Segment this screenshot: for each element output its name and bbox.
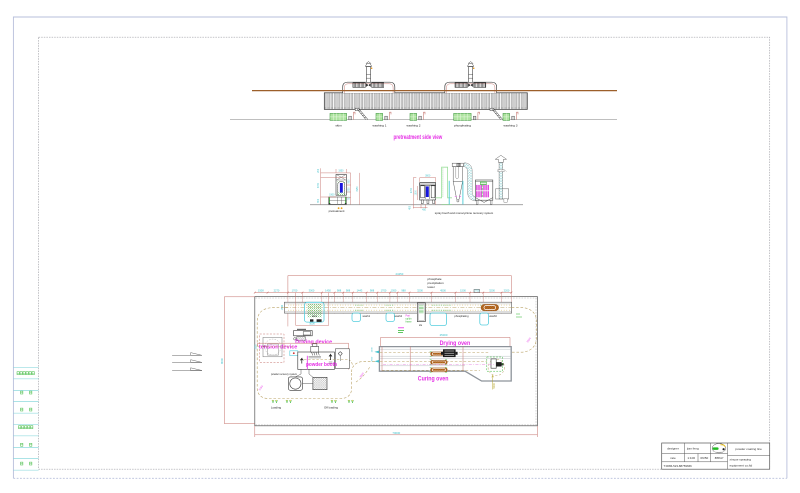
svg-text:1750: 1750 (348, 187, 350, 193)
svg-text:spray booth and monocyclone re: spray booth and monocyclone recovery sys… (435, 211, 494, 215)
svg-text:988: 988 (401, 288, 406, 292)
svg-text:Curing oven: Curing oven (418, 376, 449, 383)
svg-text:2000: 2000 (372, 347, 374, 353)
svg-text:T:0086-523-88759666: T:0086-523-88759666 (664, 464, 693, 468)
svg-text:2270: 2270 (274, 288, 280, 292)
svg-text:1508: 1508 (258, 288, 264, 292)
svg-text:pretreatment side view: pretreatment side view (394, 134, 443, 141)
svg-text:1900: 1900 (415, 190, 417, 196)
svg-text:70000: 70000 (392, 431, 400, 435)
svg-text:tower: tower (428, 285, 435, 289)
svg-text:Drying oven: Drying oven (440, 340, 471, 347)
svg-text:988: 988 (370, 288, 375, 292)
svg-text:frame: frame (406, 321, 413, 324)
svg-text:xinyue spraying: xinyue spraying (730, 457, 752, 461)
svg-text:4500: 4500 (440, 288, 446, 292)
svg-text:Off loading: Off loading (324, 406, 338, 410)
svg-text:5000: 5000 (493, 382, 496, 388)
svg-text:3200: 3200 (489, 288, 495, 292)
svg-text:jian feng: jian feng (686, 447, 699, 451)
svg-text:3150: 3150 (318, 182, 320, 188)
svg-text:1700: 1700 (381, 288, 387, 292)
svg-text:washing 1: washing 1 (373, 123, 387, 127)
svg-text:wash1: wash1 (363, 314, 371, 318)
svg-text:1900: 1900 (329, 194, 335, 196)
svg-text:powder recovery system: powder recovery system (271, 373, 297, 376)
svg-text:rate: rate (670, 456, 676, 460)
svg-text:tension device: tension device (259, 345, 298, 351)
svg-text:phosphating: phosphating (454, 123, 471, 127)
svg-text:1700: 1700 (474, 288, 480, 292)
svg-text:1700: 1700 (292, 288, 298, 292)
svg-text:skim: skim (335, 123, 342, 127)
svg-text:1050: 1050 (391, 288, 397, 292)
svg-text:24250: 24250 (396, 272, 404, 276)
svg-text:skim: skim (312, 314, 317, 318)
svg-text:washing 2: washing 2 (407, 123, 421, 127)
svg-text:3950: 3950 (357, 186, 359, 192)
svg-text:powder coating line: powder coating line (735, 447, 762, 451)
svg-text:25000: 25000 (440, 333, 448, 337)
svg-text:988: 988 (337, 288, 342, 292)
svg-text:885617: 885617 (715, 456, 724, 460)
svg-text:2000: 2000 (372, 356, 374, 362)
svg-text:powder booth: powder booth (306, 362, 337, 368)
svg-text:988: 988 (346, 288, 351, 292)
svg-text:washing 3: washing 3 (504, 123, 518, 127)
svg-text:wash2: wash2 (395, 314, 403, 318)
svg-text:1450: 1450 (325, 288, 331, 292)
svg-text:3200: 3200 (417, 288, 423, 292)
svg-text:3000: 3000 (425, 175, 431, 177)
svg-text:06/50: 06/50 (700, 456, 708, 460)
svg-text:8000: 8000 (220, 358, 224, 364)
svg-text:1950: 1950 (338, 171, 344, 173)
svg-text:wash3: wash3 (489, 314, 497, 318)
svg-text:1443: 1443 (357, 288, 363, 292)
svg-text:2700: 2700 (411, 187, 413, 193)
svg-text:equipment co;ltd: equipment co;ltd (730, 463, 753, 467)
svg-text:5000: 5000 (309, 323, 315, 326)
svg-text:pretreatment: pretreatment (329, 209, 345, 213)
svg-text:1500: 1500 (281, 304, 284, 310)
svg-text:2200: 2200 (504, 288, 510, 292)
svg-text:3000: 3000 (309, 288, 315, 292)
svg-text:phosphating: phosphating (454, 314, 469, 318)
svg-text:designer: designer (667, 447, 679, 451)
svg-text:Loading: Loading (271, 406, 282, 410)
svg-text:1500: 1500 (460, 288, 466, 292)
svg-text:1:100: 1:100 (687, 456, 695, 460)
